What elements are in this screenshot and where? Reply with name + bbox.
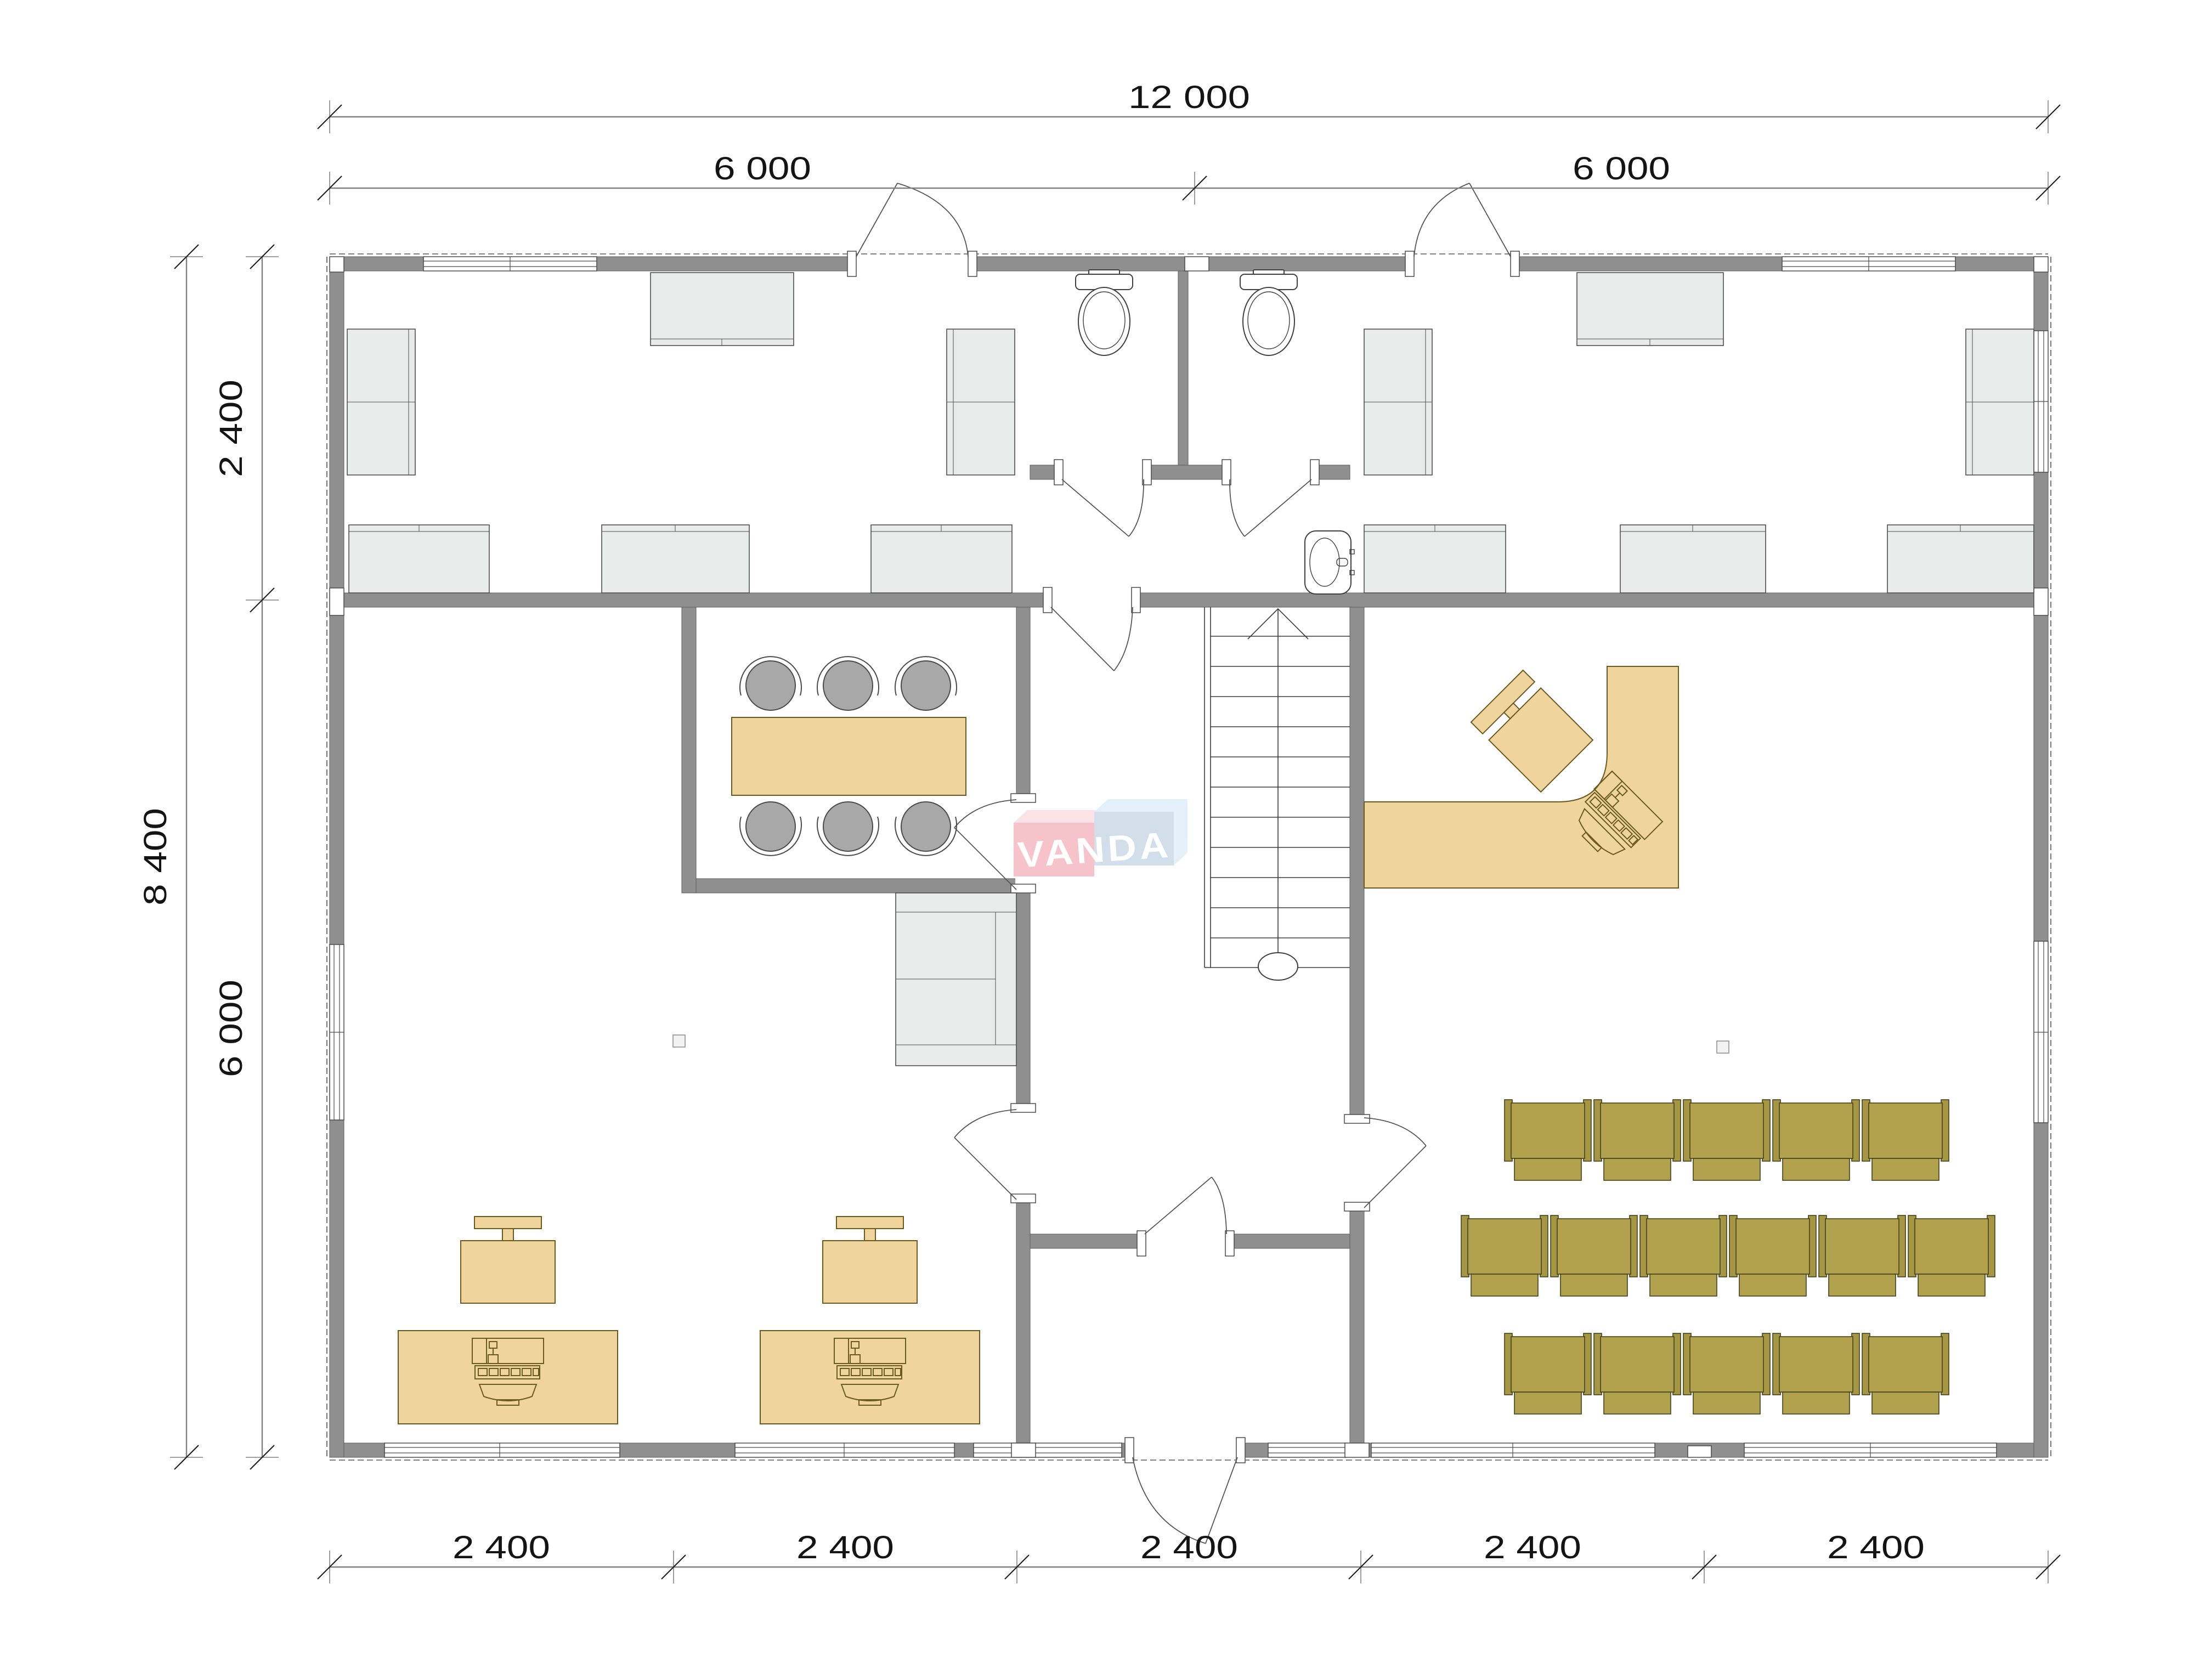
watermark: VANDA <box>1014 799 1188 876</box>
opening-door-top-right <box>1410 254 1515 273</box>
dim-bottom-5: 2 400 <box>1827 1530 1925 1565</box>
seminar-chair <box>1819 1215 1905 1296</box>
desk-tr-leftwall <box>1364 329 1432 475</box>
opening-door-top-left <box>852 254 972 273</box>
meeting-chair-5 <box>817 802 879 856</box>
reception-chair <box>1471 670 1593 792</box>
meeting-chair-3 <box>895 657 957 710</box>
door-vestibule <box>1051 607 1133 671</box>
door-lobby <box>1145 1177 1226 1234</box>
desk-chair-2 <box>823 1217 917 1303</box>
seminar-chair <box>1683 1333 1770 1414</box>
corner-post-top-right <box>2034 257 2048 272</box>
desk-tr-bottom-3 <box>1887 525 2034 593</box>
desk-tl-rightwall <box>947 329 1015 475</box>
desk-tl-topwall <box>651 273 794 346</box>
floor-mark-right <box>1717 1041 1729 1053</box>
seminar-chair <box>1862 1333 1949 1414</box>
opening-wc1-door <box>1059 463 1147 482</box>
dim-bottom-1: 2 400 <box>453 1530 550 1565</box>
work-desk-2 <box>760 1331 980 1424</box>
dim-top-left: 6 000 <box>714 151 811 186</box>
floor-mark-left <box>673 1035 685 1047</box>
opening-entrance-door <box>1129 1441 1241 1460</box>
opening-wc2-door <box>1226 463 1315 482</box>
corner-post-top-left <box>330 257 344 272</box>
seminar-chair <box>1729 1215 1816 1296</box>
staircase <box>1205 607 1350 980</box>
window-left-small <box>330 588 344 615</box>
floor-plan-drawing: 12 000 6 000 6 000 8 400 2 400 6 000 2 4… <box>0 0 2194 1680</box>
desk-tr-rightwall <box>1966 329 2034 475</box>
kitchenette-cabinet <box>896 893 1016 1066</box>
seminar-chair <box>1505 1100 1591 1180</box>
wall-hall-left <box>1016 607 1030 1443</box>
wall-meeting-left <box>682 607 696 893</box>
seminar-chair <box>1773 1333 1859 1414</box>
door-meeting-room <box>954 800 1016 890</box>
door-wc1 <box>1062 479 1144 536</box>
seminar-chair <box>1773 1100 1859 1180</box>
meeting-chair-4 <box>740 802 801 856</box>
seminar-chair <box>1594 1100 1681 1180</box>
desk-tl-bottom-3 <box>871 525 1012 593</box>
window-bottom-6 <box>1744 1443 1997 1457</box>
seminar-chair-rows <box>1461 1100 1995 1414</box>
door-left-room <box>954 1110 1016 1200</box>
meeting-chair-2 <box>817 657 879 710</box>
seminar-chair <box>1683 1100 1770 1180</box>
desk-chair-1 <box>461 1217 555 1303</box>
meeting-chair-1 <box>740 657 801 710</box>
wc-fixtures <box>1076 270 1354 594</box>
wall-mid-horizontal <box>344 593 2034 607</box>
opening-lobby-door <box>1141 1232 1230 1251</box>
vent-box-top <box>1185 257 1209 271</box>
desk-tr-bottom-2 <box>1620 525 1766 593</box>
desk-tl-leftwall <box>347 329 415 475</box>
dim-bottom-4: 2 400 <box>1484 1530 1581 1565</box>
dim-top-total: 12 000 <box>1128 80 1250 115</box>
window-bottom-1 <box>384 1443 620 1457</box>
seminar-chair <box>1461 1215 1548 1296</box>
window-bottom-5 <box>1371 1443 1655 1457</box>
meeting-chair-6 <box>895 802 957 856</box>
wall-hall-right <box>1350 607 1364 1443</box>
junction-box-bottom-left <box>1011 1443 1036 1457</box>
toilet-1 <box>1076 270 1133 355</box>
door-right-room <box>1364 1118 1426 1208</box>
desk-tl-bottom-1 <box>349 525 489 593</box>
watermark-blue-top <box>1094 799 1188 812</box>
wall-meeting-bottom <box>696 879 1030 893</box>
dim-left-upper: 2 400 <box>213 380 249 477</box>
pier-box-bottom <box>1688 1446 1711 1457</box>
seminar-chair <box>1551 1215 1637 1296</box>
dim-left-lower: 6 000 <box>213 980 249 1077</box>
seminar-chair <box>1505 1333 1591 1414</box>
desk-tr-bottom-1 <box>1364 525 1506 593</box>
dim-bottom-3: 2 400 <box>1140 1530 1238 1565</box>
opening-vestibule-door <box>1048 591 1136 609</box>
work-desk-1 <box>398 1331 618 1424</box>
seminar-chair <box>1640 1215 1727 1296</box>
window-bottom-4 <box>1268 1443 1347 1457</box>
opening-right-room-door <box>1349 1119 1365 1207</box>
seminar-chair <box>1908 1215 1995 1296</box>
window-right-long <box>2034 941 2048 1123</box>
door-wc2 <box>1230 479 1311 536</box>
junction-box-bottom-right <box>1345 1443 1369 1457</box>
meeting-table <box>732 717 966 795</box>
office-desks <box>347 273 2034 593</box>
wall-left <box>330 257 344 1457</box>
desk-tl-bottom-2 <box>602 525 749 593</box>
window-top-2 <box>1782 257 1955 271</box>
window-right-small <box>2034 588 2048 615</box>
floor-plan-page: 12 000 6 000 6 000 8 400 2 400 6 000 2 4… <box>0 0 2194 1680</box>
window-top-1 <box>423 257 597 271</box>
wall-wc-divider <box>1178 271 1188 465</box>
dim-top-right: 6 000 <box>1573 151 1670 186</box>
door-top-right <box>1414 183 1511 257</box>
desk-tr-topwall <box>1577 273 1723 346</box>
reception-area <box>1364 666 1678 888</box>
window-bottom-2 <box>735 1443 954 1457</box>
dim-left-total: 8 400 <box>138 808 173 906</box>
seminar-chair <box>1594 1333 1681 1414</box>
sink <box>1305 531 1354 594</box>
stair-newel-post <box>1258 953 1298 980</box>
window-left-long <box>330 944 344 1120</box>
seminar-chair <box>1862 1100 1949 1180</box>
toilet-2 <box>1240 270 1297 355</box>
watermark-pink-top <box>1014 810 1108 823</box>
dim-bottom-2: 2 400 <box>796 1530 894 1565</box>
opening-left-room-door <box>1015 1108 1031 1198</box>
window-bottom-3 <box>974 1443 1122 1457</box>
left-room-desks <box>398 1217 980 1424</box>
reception-desk <box>1364 666 1678 888</box>
meeting-room-furniture <box>732 657 966 856</box>
window-right-office <box>2034 331 2048 472</box>
door-top-left <box>856 183 968 257</box>
